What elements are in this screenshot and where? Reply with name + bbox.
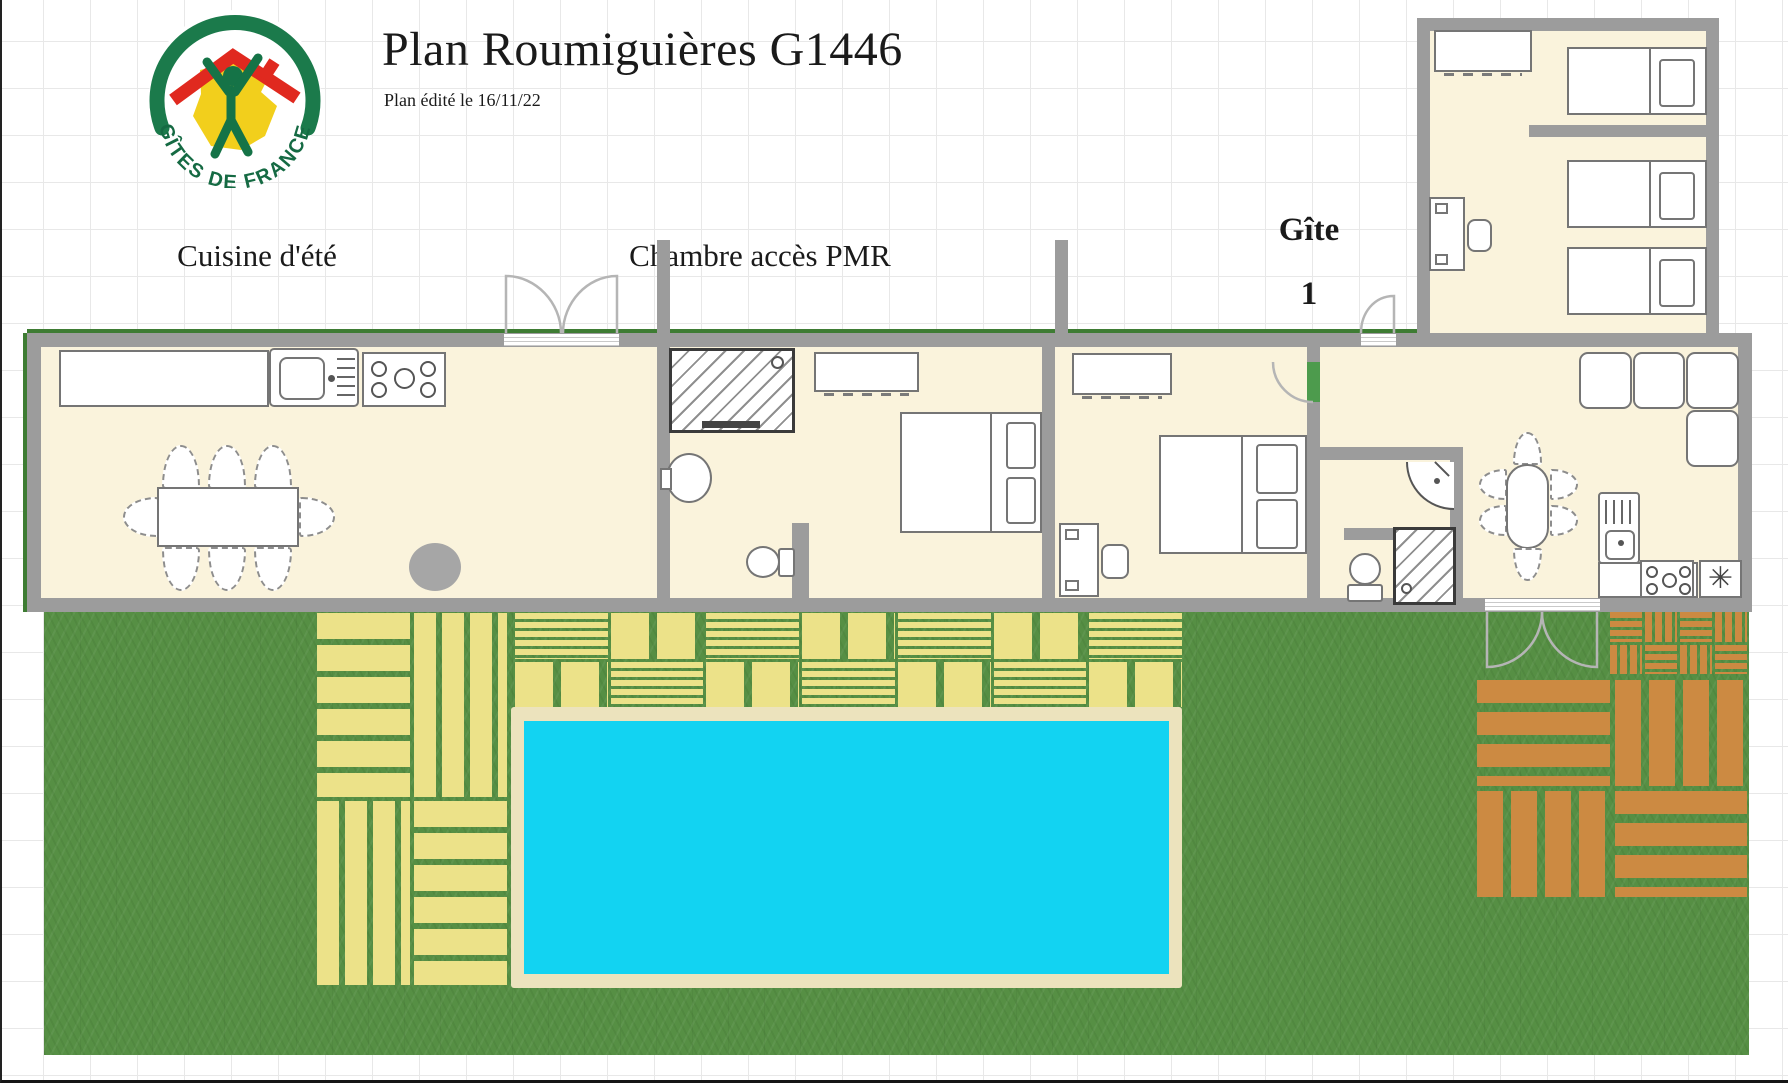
single-bed xyxy=(1567,247,1707,315)
pillow xyxy=(1659,172,1695,220)
sink-faucet xyxy=(1618,540,1624,546)
desk-drawer xyxy=(1435,254,1448,265)
door-arc xyxy=(563,276,617,333)
floor-plan-page: GÎTES DE FRANCE Plan Roumiguières G1446 … xyxy=(0,0,1788,1083)
shower-head xyxy=(771,356,784,369)
shower-pmr xyxy=(669,348,795,433)
single-bed xyxy=(1567,160,1707,228)
bed-divider xyxy=(1649,162,1651,226)
bed-divider xyxy=(990,414,992,531)
burner xyxy=(371,382,387,398)
kitchenette-sink-unit xyxy=(1598,492,1640,564)
shower-step xyxy=(702,421,760,428)
shower-head xyxy=(1401,583,1412,594)
wall-dormitory-right xyxy=(1706,18,1719,345)
oval-dining-table xyxy=(1506,464,1549,549)
dresser-handles xyxy=(1444,73,1522,76)
pillow xyxy=(1006,477,1036,524)
pool-water xyxy=(524,721,1169,974)
dresser xyxy=(814,352,919,392)
toilet-bowl xyxy=(746,546,780,578)
deck-yellow-left xyxy=(317,613,507,985)
bed-divider xyxy=(1241,437,1243,552)
page-title: Plan Roumiguières G1446 xyxy=(382,22,903,77)
burner xyxy=(420,382,436,398)
desk-chair xyxy=(1101,544,1129,579)
label-gite-word: Gîte xyxy=(1244,212,1374,249)
wall-outdoor-stub-2 xyxy=(1055,240,1068,333)
drainboard xyxy=(1605,500,1635,524)
deck-yellow-pool-strip xyxy=(515,613,1182,707)
bed-divider xyxy=(1649,249,1651,313)
sink-drainboard xyxy=(337,358,355,400)
wall-outdoor-stub-1 xyxy=(657,240,670,333)
desk-drawer xyxy=(1065,580,1079,591)
label-gite-number: 1 xyxy=(1244,276,1374,313)
wall-bathroom-stub xyxy=(1344,528,1394,540)
toilet-bowl xyxy=(1349,553,1381,585)
kitchen-hob xyxy=(362,352,446,407)
burner xyxy=(1679,566,1691,578)
burner xyxy=(1646,583,1658,595)
single-bed xyxy=(1567,47,1707,115)
wall-exterior-top xyxy=(27,333,1752,347)
bed-divider xyxy=(1649,49,1651,113)
sofa-corner xyxy=(1686,352,1739,409)
deck-orange-small xyxy=(1610,612,1747,674)
double-bed-pmr xyxy=(900,412,1042,533)
desk-drawer xyxy=(1435,203,1448,214)
room-hallway xyxy=(1320,347,1450,447)
sofa-seat xyxy=(1579,352,1632,409)
shower-gite1 xyxy=(1393,527,1456,605)
door-arc xyxy=(506,276,561,333)
wall-dormitory-left xyxy=(1417,18,1430,333)
dining-table xyxy=(157,487,299,547)
desk-drawer xyxy=(1065,529,1079,540)
label-pmr-bedroom: Chambre accès PMR xyxy=(600,238,920,274)
deck-orange-large xyxy=(1477,680,1747,897)
kitchenette-hob xyxy=(1640,560,1694,598)
burner xyxy=(1679,583,1691,595)
swimming-pool xyxy=(511,707,1182,988)
sink-faucet xyxy=(328,375,335,382)
double-bed-2 xyxy=(1159,435,1307,554)
desk xyxy=(1429,197,1465,271)
wall-exterior-left xyxy=(27,333,41,612)
washbasin-pedestal xyxy=(660,468,672,490)
wall-bathroom-top xyxy=(1320,447,1463,460)
door-threshold-entrance xyxy=(1361,334,1396,346)
sink-basin xyxy=(279,357,325,400)
edit-date: Plan édité le 16/11/22 xyxy=(384,90,541,111)
dresser xyxy=(1072,353,1172,395)
basin-drain xyxy=(1434,478,1440,484)
burner-center xyxy=(394,368,415,389)
stool xyxy=(409,543,461,591)
extractor-fan-icon: ✳ xyxy=(1699,560,1742,598)
pillow xyxy=(1006,422,1036,469)
wall-pmr-bedroom2 xyxy=(1042,347,1055,598)
desk xyxy=(1059,523,1099,597)
burner xyxy=(371,361,387,377)
label-summer-kitchen: Cuisine d'été xyxy=(122,238,392,274)
burner xyxy=(1646,566,1658,578)
door-threshold-terrace xyxy=(1485,599,1600,611)
kitchen-counter xyxy=(59,350,269,407)
basin-tap xyxy=(1434,461,1450,477)
sofa-seat xyxy=(1633,352,1685,409)
sofa-seat xyxy=(1686,410,1739,467)
burner xyxy=(420,361,436,377)
wall-dormitory-partition xyxy=(1529,125,1719,137)
dresser-handles xyxy=(1082,396,1162,399)
dresser xyxy=(1434,30,1532,72)
door-leaf-bedroom2 xyxy=(1307,362,1320,402)
washbasin-pmr xyxy=(666,453,712,503)
pillow xyxy=(1659,259,1695,307)
wall-bedroom2-hall-upper xyxy=(1307,347,1320,362)
burner-center xyxy=(1662,573,1677,588)
toilet-tank xyxy=(1347,584,1383,602)
pillow xyxy=(1659,59,1695,107)
pillow xyxy=(1256,444,1298,494)
gites-de-france-logo: GÎTES DE FRANCE xyxy=(145,8,325,188)
dresser-handles xyxy=(824,393,909,396)
toilet-tank xyxy=(778,548,795,577)
pillow xyxy=(1256,499,1298,549)
door-threshold-kitchen xyxy=(504,334,619,346)
kitchen-sink-unit xyxy=(269,348,359,407)
desk-chair xyxy=(1467,219,1492,252)
wall-bedroom2-hall-lower xyxy=(1307,402,1320,598)
